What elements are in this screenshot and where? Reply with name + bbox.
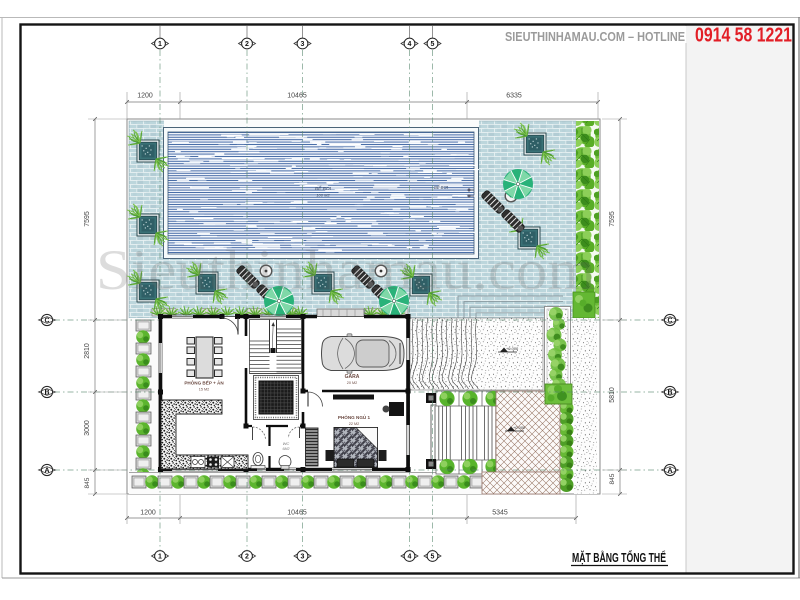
svg-text:10465: 10465: [287, 510, 307, 517]
svg-text:WC: WC: [283, 441, 290, 446]
svg-text:10465: 10465: [287, 93, 307, 100]
svg-text:2: 2: [245, 554, 249, 561]
svg-text:PHÒNG NGỦ 1: PHÒNG NGỦ 1: [338, 413, 371, 420]
svg-text:3000: 3000: [84, 420, 91, 436]
svg-text:+0.000: +0.000: [506, 346, 519, 351]
svg-text:B: B: [44, 390, 49, 397]
svg-text:B: B: [667, 390, 672, 397]
svg-text:4: 4: [408, 554, 412, 561]
svg-text:BỂ BƠI: BỂ BƠI: [434, 185, 449, 190]
svg-text:SIEUTHINHAMAU.COM – HOTLINE: SIEUTHINHAMAU.COM – HOTLINE: [505, 29, 685, 44]
svg-text:C: C: [667, 318, 672, 325]
svg-text:Sieuthinhamau.com: Sieuthinhamau.com: [96, 239, 596, 302]
svg-text:2: 2: [245, 41, 249, 48]
svg-text:4: 4: [408, 41, 412, 48]
svg-text:0914 58 1221: 0914 58 1221: [695, 25, 792, 47]
svg-text:3: 3: [301, 554, 305, 561]
svg-text:2810: 2810: [84, 343, 91, 359]
svg-text:5: 5: [431, 41, 435, 48]
svg-text:C: C: [44, 318, 49, 325]
svg-text:MẶT BẰNG TỔNG THỂ: MẶT BẰNG TỔNG THỂ: [572, 550, 666, 565]
svg-text:GARA: GARA: [345, 374, 360, 380]
svg-text:5810: 5810: [609, 387, 616, 403]
svg-text:1200: 1200: [140, 510, 156, 517]
svg-text:A: A: [667, 468, 672, 475]
svg-text:22 M2: 22 M2: [349, 422, 360, 426]
svg-text:845: 845: [84, 477, 91, 488]
svg-text:6M2: 6M2: [283, 447, 290, 451]
svg-text:5: 5: [431, 554, 435, 561]
svg-text:PHÒNG BẾP + ĂN: PHÒNG BẾP + ĂN: [184, 379, 224, 386]
svg-text:+0.000: +0.000: [513, 425, 526, 430]
svg-text:1: 1: [158, 554, 162, 561]
svg-text:7595: 7595: [609, 211, 616, 227]
svg-text:845: 845: [609, 473, 616, 484]
svg-text:BỂ BƠI: BỂ BƠI: [315, 185, 332, 192]
svg-text:20 M2: 20 M2: [347, 381, 358, 385]
svg-text:5345: 5345: [492, 510, 508, 517]
svg-text:15 M2: 15 M2: [199, 388, 210, 392]
svg-text:A: A: [44, 468, 49, 475]
svg-text:3: 3: [301, 41, 305, 48]
svg-text:6335: 6335: [506, 93, 522, 100]
svg-text:100 M2: 100 M2: [316, 193, 330, 198]
svg-text:1200: 1200: [137, 93, 153, 100]
svg-text:7595: 7595: [84, 211, 91, 227]
svg-text:1: 1: [158, 41, 162, 48]
